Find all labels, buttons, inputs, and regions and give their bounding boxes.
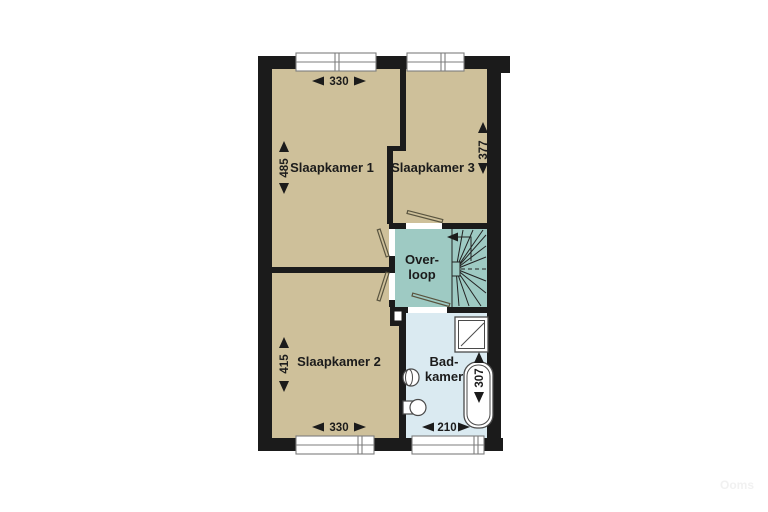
stair-newel (452, 262, 460, 276)
toilet-bowl (410, 400, 426, 416)
sink-tap (406, 370, 413, 386)
opening-slaapkamer1 (389, 229, 395, 256)
toilet-icon (403, 400, 426, 416)
shaft-inset (394, 311, 402, 321)
window-slaapkamer3 (407, 53, 464, 71)
dim-bad-depth: 307 (474, 368, 486, 387)
window-badkamer (412, 436, 484, 454)
dim-s2-depth: 415 (279, 354, 291, 374)
room-label-badkamer-line1: Bad- (430, 354, 459, 369)
window-slaapkamer2 (296, 436, 374, 454)
wall-s1-s3-jog (387, 146, 406, 151)
window-slaapkamer1 (296, 53, 376, 71)
dim-bad-width: 210 (437, 422, 456, 434)
room-label-slaapkamer2: Slaapkamer 2 (297, 354, 381, 369)
wall-s1-s3-upper (400, 69, 406, 146)
wall-s1-s2 (272, 267, 389, 273)
wall-overloop-bottom-right (447, 307, 487, 313)
dim-s1-width: 330 (329, 76, 348, 88)
room-label-slaapkamer1: Slaapkamer 1 (290, 160, 374, 175)
outer-wall-top-right-nib (501, 56, 510, 73)
outer-wall-left (258, 56, 272, 451)
wall-overloop-top-right (442, 223, 487, 229)
dim-s1-depth: 485 (279, 158, 291, 178)
dim-s3-depth: 377 (478, 140, 490, 159)
wall-overloop-top-left (389, 223, 406, 229)
opening-slaapkamer2 (389, 273, 395, 300)
room-label-overloop-line1: Over- (405, 252, 439, 267)
opening-badkamer (408, 307, 447, 313)
sink-icon (403, 369, 419, 386)
room-label-badkamer-line2: kamer (425, 369, 463, 384)
shower-icon (455, 317, 488, 352)
wall-overloop-left-corner (389, 300, 395, 307)
floorplan-page: Slaapkamer 1 Slaapkamer 3 Slaapkamer 2 O… (0, 0, 768, 512)
dim-s2-width: 330 (329, 422, 348, 434)
room-slaapkamer3-floor-upper (406, 69, 487, 151)
room-label-slaapkamer3: Slaapkamer 3 (391, 160, 475, 175)
watermark: Ooms (720, 478, 754, 492)
opening-slaapkamer3 (406, 223, 442, 229)
room-label-overloop-line2: loop (408, 267, 435, 282)
floorplan-drawing: Slaapkamer 1 Slaapkamer 3 Slaapkamer 2 O… (0, 0, 768, 512)
wall-overloop-left-stub (389, 256, 395, 273)
